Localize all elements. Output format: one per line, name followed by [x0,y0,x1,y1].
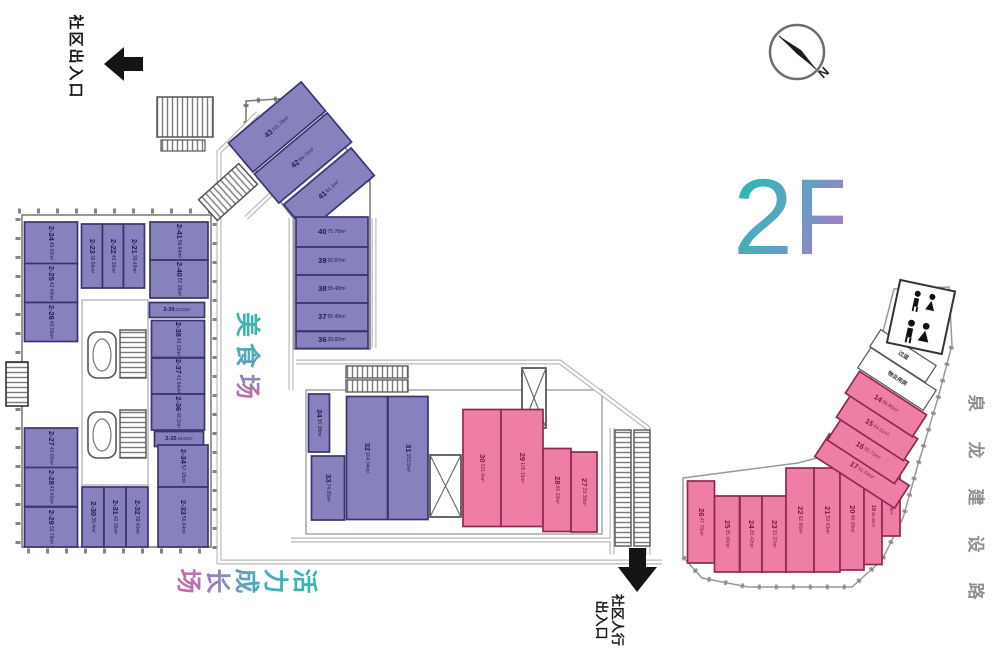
unit-38[interactable]: 38 55.48m² [296,275,368,303]
escalator-icon [615,430,631,546]
pedestrian-entrance-label: 社区人行 出入口 [591,585,625,655]
unit-26[interactable]: 26 47.76m² [688,481,715,563]
unit-2-29[interactable]: 2-29 33.79m² [25,507,78,547]
unit-32[interactable]: 32 104.04m² [347,397,388,520]
unit-2-24[interactable]: 2-24 49.92m² [25,222,78,264]
unit-2-23[interactable]: 2-23 39.56m² [82,224,103,288]
unit-39[interactable]: 39 56.87m² [296,247,368,275]
zone-growth-label: 活力成长场 [176,569,318,597]
compass-needle-icon [779,36,816,69]
unit-24[interactable]: 24 28.42m² [740,496,762,572]
community-entrance-label: 社区出入口 [67,12,83,102]
unit-2-41[interactable]: 2-41 56.64m² [150,222,208,260]
unit-2-38[interactable]: 2-38 42.12m² [152,321,205,358]
unit-21[interactable]: 21 59.43m² [814,468,840,572]
road-name-label: 泉龙建设路 [964,392,986,632]
unit-2-39[interactable]: 2-39 22.02m² [150,303,205,318]
escalator-icon [161,140,205,151]
unit-27[interactable]: 27 29.38m² [571,452,597,532]
escalator-icon [199,164,258,221]
louver-icon [6,362,28,406]
escalator-icon [157,97,213,137]
unit-31[interactable]: 31 102.5m² [388,397,428,520]
restroom-block [887,280,955,354]
unit-2-32[interactable]: 2-32 39.40m² [126,487,148,547]
escalator-icon [346,366,408,378]
compass-north-label: N [815,64,832,81]
unit-2-28[interactable]: 2-28 42.40m² [25,468,78,507]
unit-2-31[interactable]: 2-31 42.35m² [104,487,126,547]
unit-34[interactable]: 34 36.38m² [309,394,330,452]
escalator-icon [346,380,408,392]
pedestrian-entrance-line2: 出入口 [593,585,609,655]
floor-label: 2F [733,152,843,292]
unit-37[interactable]: 37 55.49m² [296,303,368,331]
pedestrian-entrance-line1: 社区人行 [609,585,625,655]
unit-2-37[interactable]: 2-37 41.64m² [152,358,205,394]
unit-36[interactable]: 36 39.82m² [296,332,368,349]
compass: N [770,25,832,81]
unit-2-25[interactable]: 2-25 42.40m² [25,264,78,303]
unit-25[interactable]: 25 35.06m² [715,496,740,572]
stairs-icon [120,410,146,458]
unit-2-22[interactable]: 2-22 40.35m² [103,224,124,288]
unit-40[interactable]: 40 75.76m² [296,217,368,247]
unit-2-27[interactable]: 2-27 40.00m² [25,428,78,468]
zone-food-court-label: 美食场 [232,312,262,402]
unit-30[interactable]: 30 101.6m² [463,410,501,527]
unit-2-40[interactable]: 2-40 57.35m² [150,260,208,298]
stairs-icon [120,330,146,378]
floor-plan-page: 43 111.73m²42 64.71m²41 61.1m²40 75.76m²… [0,0,1000,666]
entrance-arrow-left-icon [104,47,143,81]
unit-33[interactable]: 33 74.05m² [312,456,345,520]
unit-2-30[interactable]: 2-30 39.4m² [82,487,104,547]
floor-plan: 43 111.73m²42 64.71m²41 61.1m²40 75.76m²… [0,0,1000,666]
unit-28[interactable]: 28 66.19m² [543,449,571,532]
unit-2-34[interactable]: 2-34 57.15m² [158,445,208,487]
unit-2-33[interactable]: 2-33 56.64m² [158,487,208,547]
unit-22[interactable]: 22 62.66m² [786,468,814,572]
unit-2-26[interactable]: 2-26 40.00m² [25,303,78,342]
unit-29[interactable]: 29 105.16m² [501,410,543,527]
unit-23[interactable]: 23 33.37m² [762,496,786,572]
unit-2-21[interactable]: 2-21 39.49m² [124,224,145,288]
unit-2-36[interactable]: 2-36 42.2m² [152,394,205,430]
escalator-icon [634,430,650,546]
